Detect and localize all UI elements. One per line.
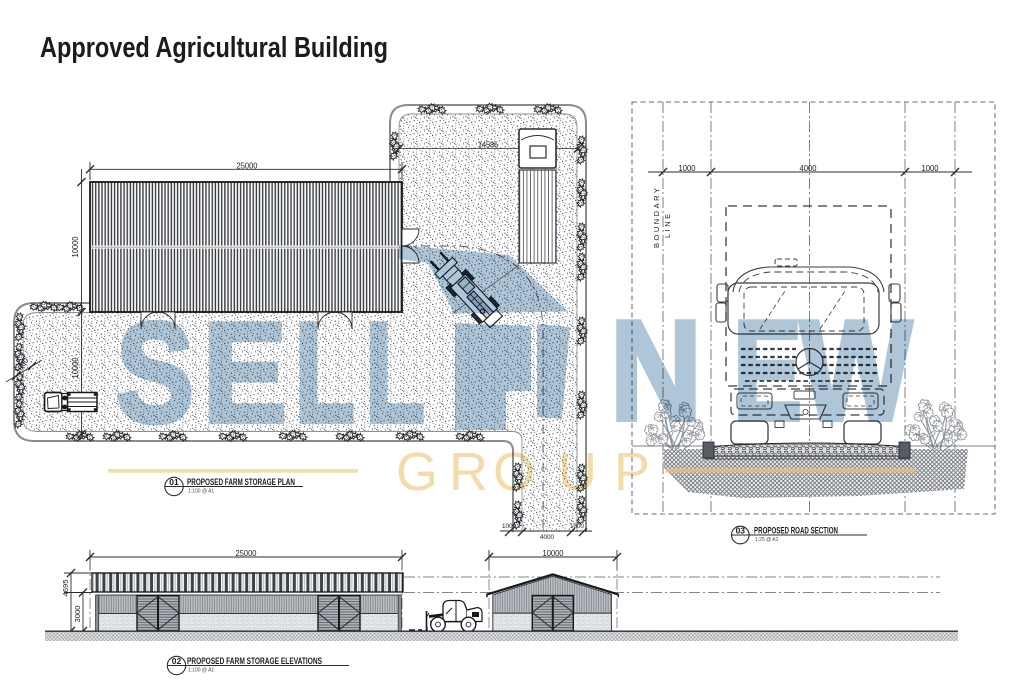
svg-text:10000: 10000 (70, 357, 80, 378)
svg-text:G: G (396, 442, 438, 502)
svg-text:1000: 1000 (570, 523, 584, 530)
svg-text:02: 02 (172, 656, 182, 666)
svg-text:10000: 10000 (543, 548, 564, 558)
svg-text:10000: 10000 (70, 236, 80, 257)
svg-text:4000: 4000 (540, 534, 554, 541)
svg-text:L: L (295, 294, 355, 453)
svg-text:S: S (116, 294, 194, 453)
svg-text:P: P (614, 442, 650, 502)
svg-text:1:25 @ A1: 1:25 @ A1 (755, 537, 779, 543)
svg-text:4695: 4695 (61, 580, 70, 597)
svg-text:L: L (365, 294, 425, 453)
svg-text:U: U (558, 442, 597, 502)
svg-text:4000: 4000 (800, 164, 818, 173)
svg-text:1:100 @ A1: 1:100 @ A1 (188, 489, 214, 495)
svg-text:E: E (203, 294, 287, 453)
svg-text:E: E (733, 292, 802, 451)
svg-text:1000: 1000 (502, 523, 516, 530)
svg-text:1:100 @ A1: 1:100 @ A1 (188, 668, 214, 674)
svg-text:Approved Agricultural Building: Approved Agricultural Building (40, 32, 388, 64)
svg-text:W: W (800, 292, 912, 451)
svg-text:LINE: LINE (663, 211, 672, 238)
svg-text:PROPOSED ROAD SECTION: PROPOSED ROAD SECTION (754, 526, 838, 536)
svg-text:O: O (493, 442, 535, 502)
svg-text:1000: 1000 (922, 164, 940, 173)
svg-text:PROPOSED FARM STORAGE ELEVAT: PROPOSED FARM STORAGE ELEVATIONS (187, 656, 322, 666)
svg-text:N: N (610, 292, 702, 451)
svg-text:01: 01 (169, 477, 179, 487)
svg-text:PROPOSED FARM STORAGE PLAN: PROPOSED FARM STORAGE PLAN (187, 477, 295, 487)
svg-text:BOUNDARY: BOUNDARY (652, 186, 661, 248)
svg-text:25000: 25000 (236, 548, 257, 558)
svg-text:1000: 1000 (679, 164, 697, 173)
svg-text:R: R (449, 442, 488, 502)
svg-text:03: 03 (736, 525, 746, 535)
svg-text:14586: 14586 (478, 141, 498, 150)
svg-text:25000: 25000 (237, 160, 258, 170)
svg-text:3000: 3000 (73, 606, 82, 623)
